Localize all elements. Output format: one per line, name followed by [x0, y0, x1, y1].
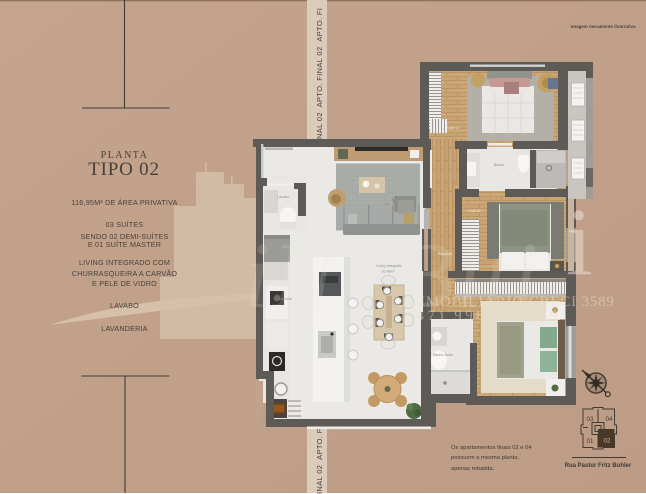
svg-text:04: 04 — [606, 416, 613, 423]
svg-text:Banho: Banho — [494, 163, 504, 167]
svg-text:03: 03 — [587, 416, 594, 423]
svg-text:Suíte 02: Suíte 02 — [467, 209, 480, 213]
svg-text:Lavabo: Lavabo — [277, 195, 289, 199]
svg-text:Suíte 01: Suíte 01 — [446, 126, 459, 130]
svg-text:02: 02 — [604, 438, 611, 445]
svg-text:01: 01 — [587, 438, 594, 445]
svg-text:Banho Suíte: Banho Suíte — [433, 353, 453, 357]
